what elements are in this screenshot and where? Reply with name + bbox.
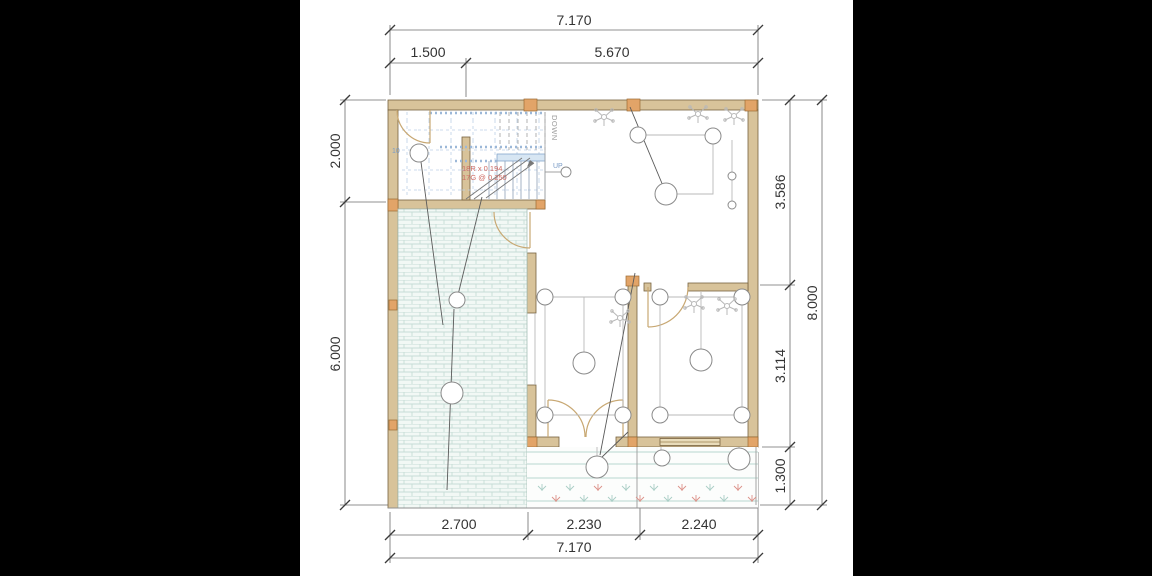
dim-right-seg2: 3.114 <box>772 349 788 383</box>
light-fixture-icon <box>734 289 750 305</box>
wall-mid-vertical <box>628 285 637 447</box>
wall-terrace-upper <box>527 253 536 313</box>
light-fixture-icon <box>537 289 553 305</box>
light-fixture-icon <box>615 407 631 423</box>
dim-left-seg1: 2.000 <box>327 133 343 168</box>
light-fixture-icon <box>652 407 668 423</box>
dim-right-seg1: 3.586 <box>772 174 788 209</box>
light-fixture-icon <box>728 172 736 180</box>
dim-top-seg2: 5.670 <box>594 44 629 60</box>
ceiling-fan-icon <box>610 310 630 327</box>
dim-left-seg2: 6.000 <box>327 336 343 371</box>
light-fixture-icon <box>655 183 677 205</box>
light-fixture-icon <box>449 292 465 308</box>
stair-riser-note: 18R x 0.194 <box>462 164 502 173</box>
dim-top-total: 7.170 <box>556 12 591 28</box>
light-fixture-icon <box>586 456 608 478</box>
dim-bottom-total: 7.170 <box>556 539 591 555</box>
light-fixture-icon <box>654 450 670 466</box>
grid-number-label: 10 <box>392 148 400 155</box>
wall-top <box>388 100 758 110</box>
dim-bottom-seg1: 2.700 <box>441 516 476 532</box>
light-fixture-icon <box>652 289 668 305</box>
light-fixture-icon <box>630 127 646 143</box>
stair-down-label: DOWN <box>550 115 559 141</box>
light-fixture-icon <box>441 382 463 404</box>
dim-top-seg1: 1.500 <box>410 44 445 60</box>
light-fixture-icon <box>410 144 428 162</box>
stair-up-label: UP <box>553 163 563 170</box>
light-fixture-icon <box>615 289 631 305</box>
light-fixture-icon <box>537 407 553 423</box>
wall-terrace-lower <box>527 385 536 437</box>
dim-right-seg3: 1.300 <box>772 458 788 493</box>
wall-stair-bottom <box>398 200 545 209</box>
light-fixture-icon <box>728 201 736 209</box>
dim-bottom-seg2: 2.230 <box>566 516 601 532</box>
stair-going-note: 17G @ 0.250 <box>462 173 507 182</box>
floor-plan-drawing: 7.170 1.500 5.670 2.700 2.230 2.240 7.17… <box>0 0 1152 576</box>
light-fixture-icon <box>573 352 595 374</box>
light-fixture-icon <box>734 407 750 423</box>
ceiling-fan-icon <box>717 298 737 315</box>
light-fixture-icon <box>728 448 750 470</box>
dim-bottom-seg3: 2.240 <box>681 516 716 532</box>
screenshot-canvas: 7.170 1.500 5.670 2.700 2.230 2.240 7.17… <box>0 0 1152 576</box>
terrace-area <box>398 209 535 508</box>
light-fixture-icon <box>690 349 712 371</box>
ceiling-fan-icon <box>594 109 614 126</box>
wall-right <box>748 110 758 447</box>
dim-right-total: 8.000 <box>804 285 820 320</box>
door-double-left <box>548 400 585 437</box>
light-fixture-icon <box>705 128 721 144</box>
